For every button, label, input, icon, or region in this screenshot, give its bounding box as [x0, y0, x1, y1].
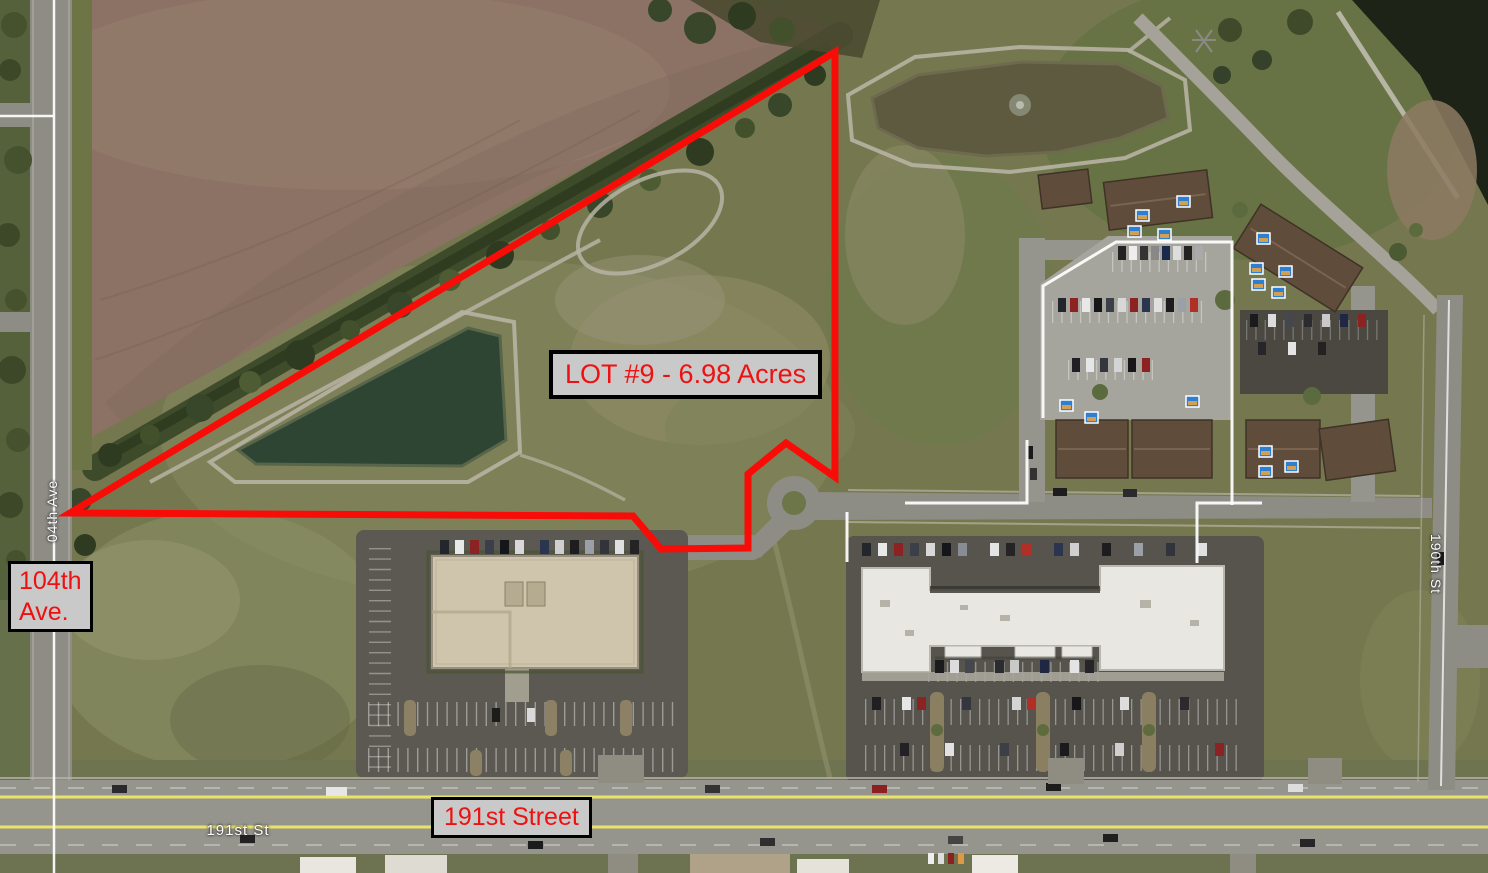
satellite-imagery[interactable] [0, 0, 1488, 873]
191st-street-label: 191st Street [431, 797, 592, 838]
104th-ave-label-line2: Ave. [19, 597, 82, 628]
street-name-190th-st: 190th St [1428, 504, 1444, 624]
driveway [1308, 758, 1342, 784]
street-name-104th-ave: 04th Ave [44, 451, 60, 571]
driveway [1048, 758, 1084, 784]
lot-area-label: LOT #9 - 6.98 Acres [549, 350, 822, 399]
104th-ave-label: 104th Ave. [8, 561, 93, 632]
driveway [598, 755, 644, 783]
191st-street-label-text: 191st Street [444, 803, 579, 831]
south-frontage [0, 853, 1488, 873]
lot-area-label-text: LOT #9 - 6.98 Acres [565, 359, 806, 389]
street-name-191st-st: 191st St [178, 822, 298, 839]
office-building [428, 552, 642, 672]
aerial-map-view[interactable]: LOT #9 - 6.98 Acres 104th Ave. 191st Str… [0, 0, 1488, 873]
